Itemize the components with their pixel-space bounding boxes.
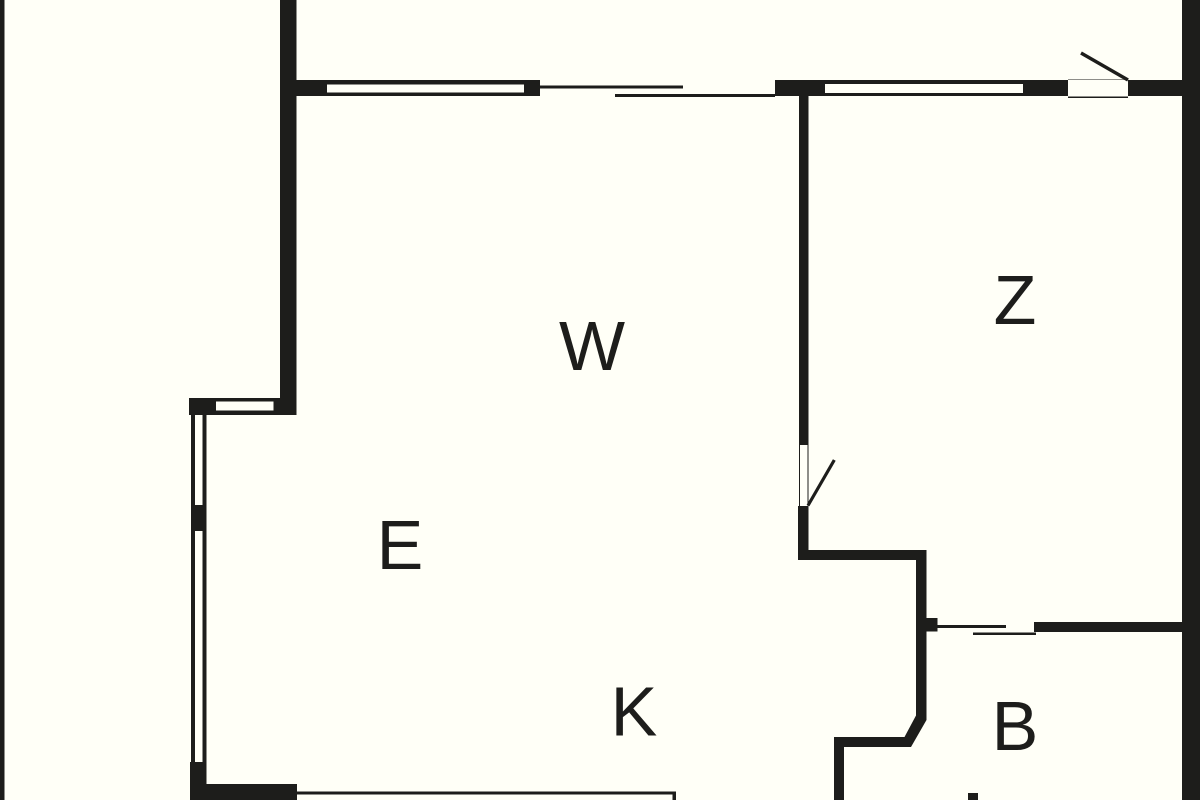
svg-text:K: K bbox=[611, 673, 658, 751]
svg-text:Z: Z bbox=[994, 261, 1037, 339]
svg-text:W: W bbox=[559, 307, 625, 385]
svg-text:E: E bbox=[377, 506, 424, 584]
svg-text:B: B bbox=[992, 687, 1039, 765]
